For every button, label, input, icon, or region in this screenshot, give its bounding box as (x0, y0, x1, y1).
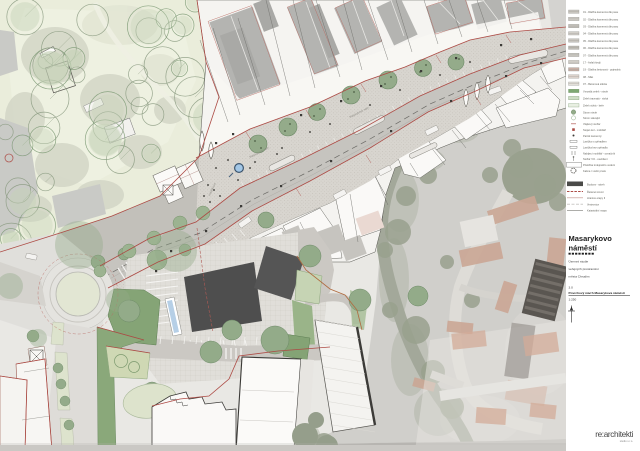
svg-text:01 - Dlažba kamenná dle pasu: 01 - Dlažba kamenná dle pasu (583, 10, 619, 14)
svg-text:Lavička s opěradlem: Lavička s opěradlem (583, 140, 607, 144)
svg-text:náměstí: náměstí (569, 244, 598, 253)
svg-text:Strom návrh: Strom návrh (583, 110, 598, 114)
svg-text:19 - Dlažba betonová - pojezdn: 19 - Dlažba betonová - pojezdná (583, 68, 621, 72)
svg-text:Kašna / vodní prvek: Kašna / vodní prvek (583, 169, 607, 173)
svg-text:06 - Dlažba kamenná dle pasu: 06 - Dlažba kamenná dle pasu (583, 46, 619, 50)
svg-text:3.0: 3.0 (569, 286, 574, 290)
svg-text:re:architekti: re:architekti (595, 430, 633, 439)
svg-text:Povrchový návrh Masarykova nám: Povrchový návrh Masarykova náměstí (569, 291, 625, 295)
svg-text:veřejných prostranství: veřejných prostranství (569, 267, 599, 271)
svg-text:Stojan kol - mobiliář: Stojan kol - mobiliář (583, 128, 606, 132)
svg-text:studio s.r.o.: studio s.r.o. (620, 439, 634, 443)
svg-text:Přeložka trolejového vedení: Přeložka trolejového vedení (583, 163, 615, 167)
svg-text:Stožár VO - osvětlení: Stožár VO - osvětlení (583, 157, 608, 161)
svg-text:Vzrostlá zeleň - návrh: Vzrostlá zeleň - návrh (583, 89, 609, 93)
svg-text:02 - Dlažba kamenná dle pasu: 02 - Dlažba kamenná dle pasu (583, 17, 619, 21)
svg-text:1:250: 1:250 (569, 298, 577, 302)
svg-text:Vrstevnice: Vrstevnice (587, 202, 600, 206)
svg-text:07 - Betonová stěrka: 07 - Betonová stěrka (583, 82, 607, 86)
svg-text:Vlajkový stožár: Vlajkový stožár (583, 122, 601, 126)
svg-text:07 - Dlažba kamenná dle pasu: 07 - Dlažba kamenná dle pasu (583, 53, 619, 57)
svg-text:Nabíjecí mobiliář - označník: Nabíjecí mobiliář - označník (583, 151, 616, 155)
svg-text:Zeleň nízká - keře: Zeleň nízká - keře (583, 104, 604, 108)
svg-text:04 - Dlažba kamenná dle pasu: 04 - Dlažba kamenná dle pasu (583, 32, 619, 36)
svg-text:17 - Asfalt šedý: 17 - Asfalt šedý (583, 61, 601, 65)
svg-text:Územní studie: Územní studie (569, 260, 589, 264)
svg-text:Zeleň travnatá - nízká: Zeleň travnatá - nízká (583, 97, 609, 101)
svg-text:Lavička bez opěradla: Lavička bez opěradla (583, 146, 608, 150)
svg-text:Patník kamenný: Patník kamenný (583, 134, 602, 138)
svg-text:Katastrální mapa: Katastrální mapa (587, 209, 607, 213)
svg-text:Budova - návrh: Budova - návrh (587, 182, 605, 186)
svg-text:08 - Mlat: 08 - Mlat (583, 75, 593, 79)
svg-text:03 - Dlažba kamenná dle pasu: 03 - Dlažba kamenná dle pasu (583, 25, 619, 29)
svg-text:Hranice etapy II: Hranice etapy II (587, 196, 605, 200)
svg-text:Strom stávající: Strom stávající (583, 116, 600, 120)
svg-text:Masarykovo: Masarykovo (569, 234, 613, 243)
svg-text:05 - Dlažba kamenná dle pasu: 05 - Dlažba kamenná dle pasu (583, 39, 619, 43)
svg-text:města Chrudim: města Chrudim (569, 275, 590, 279)
